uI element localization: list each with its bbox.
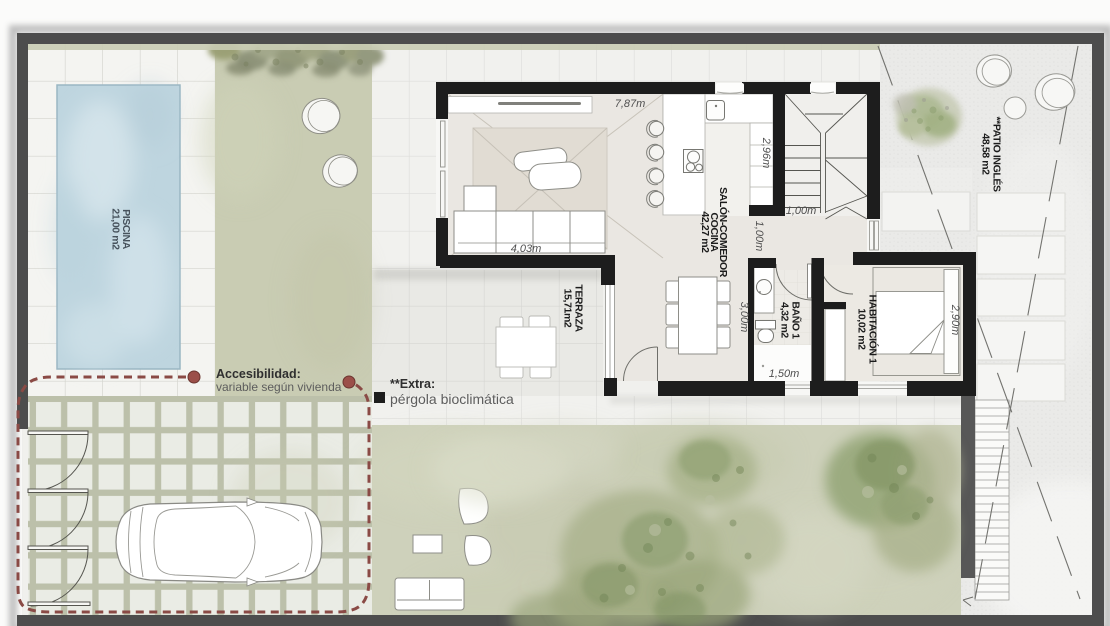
svg-text:pérgola bioclimática: pérgola bioclimática (390, 391, 514, 407)
svg-text:42,27 m2: 42,27 m2 (699, 211, 711, 253)
svg-text:Accesibilidad:: Accesibilidad: (216, 367, 301, 381)
svg-text:2,90m: 2,90m (949, 304, 961, 336)
svg-text:48,58 m2: 48,58 m2 (980, 133, 992, 175)
svg-text:2,96m: 2,96m (760, 137, 772, 169)
svg-text:variable según vivienda: variable según vivienda (216, 380, 342, 394)
svg-text:15,71m2: 15,71m2 (562, 289, 574, 328)
svg-text:1,50m: 1,50m (769, 368, 800, 380)
svg-text:4,32 m2: 4,32 m2 (779, 302, 791, 338)
svg-text:21,00 m2: 21,00 m2 (110, 208, 122, 250)
svg-text:3,00m: 3,00m (738, 302, 750, 333)
svg-text:10,02 m2: 10,02 m2 (856, 308, 868, 350)
svg-text:4,03m: 4,03m (511, 243, 542, 255)
svg-text:1,00m: 1,00m (753, 221, 765, 252)
svg-text:1,00m: 1,00m (786, 205, 817, 217)
svg-text:7,87m: 7,87m (615, 98, 646, 110)
svg-text:**Extra:: **Extra: (390, 377, 435, 391)
